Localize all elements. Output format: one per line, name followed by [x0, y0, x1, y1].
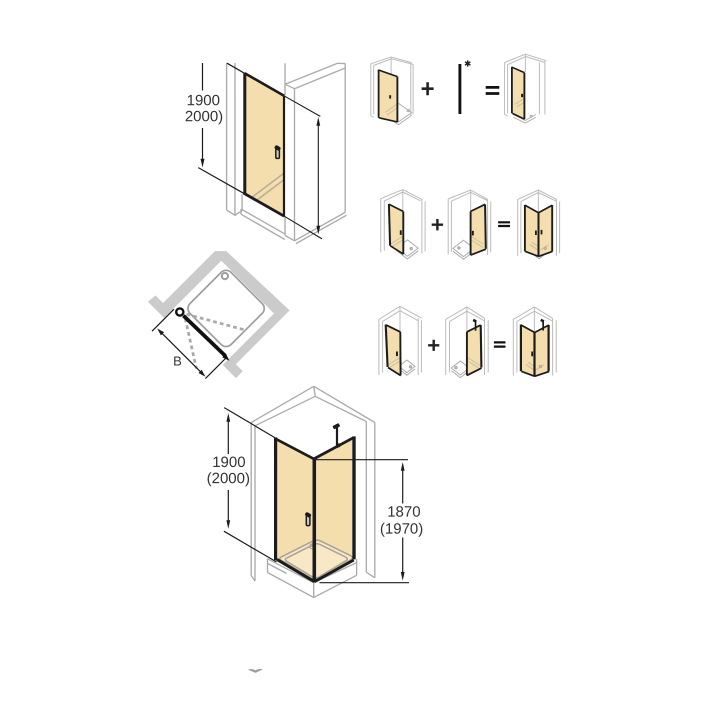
svg-text:2000): 2000) [185, 108, 223, 125]
svg-text:1870: 1870 [387, 504, 420, 521]
svg-text:(1970): (1970) [380, 521, 423, 538]
svg-text:(2000): (2000) [207, 470, 250, 487]
svg-text:B: B [173, 353, 182, 368]
svg-text:1900: 1900 [212, 454, 245, 471]
svg-text:1900: 1900 [187, 92, 220, 109]
